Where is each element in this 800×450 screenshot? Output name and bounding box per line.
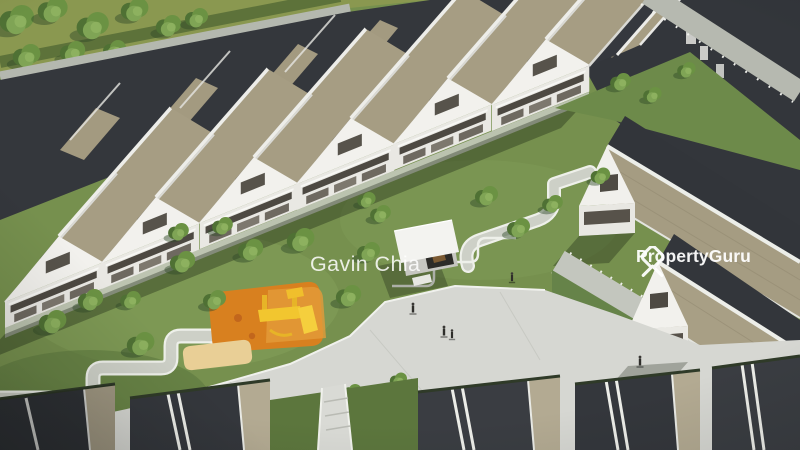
- aerial-render: [0, 0, 800, 450]
- listing-photo: Gavin Chia PropertyGuru: [0, 0, 800, 450]
